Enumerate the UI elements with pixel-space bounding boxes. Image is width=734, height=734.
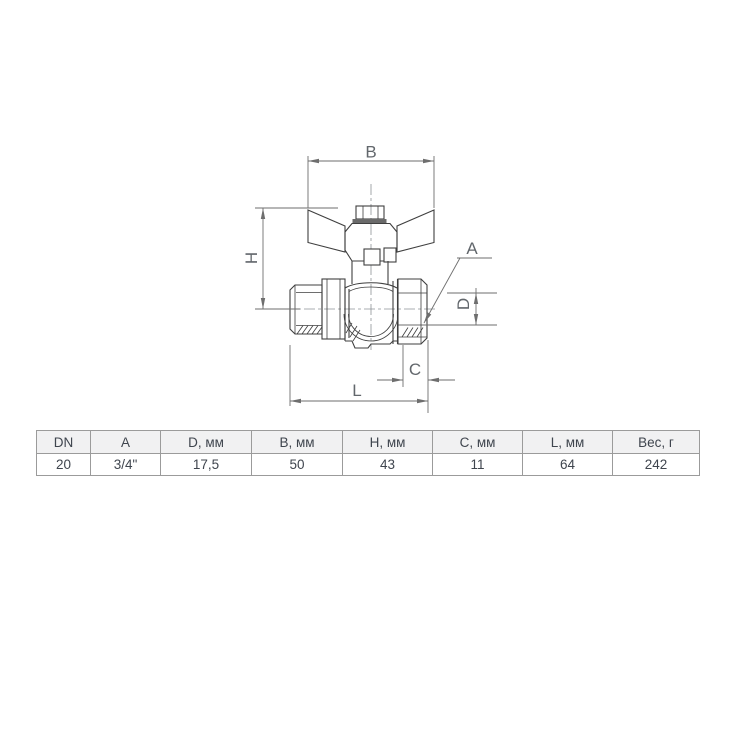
spec-table: DN A D, мм B, мм H, мм C, мм L, мм Вес, … xyxy=(36,430,700,476)
valve-technical-drawing: B H A D xyxy=(0,0,734,420)
handle-stem-square xyxy=(364,249,380,265)
male-thread-end xyxy=(290,285,322,334)
dim-label-c: C xyxy=(409,360,421,379)
spec-value-a: 3/4" xyxy=(91,454,161,476)
dim-label-d: D xyxy=(454,298,473,310)
spec-header-c-mm: C, мм xyxy=(433,431,523,454)
spec-value-row: 20 3/4" 17,5 50 43 11 64 242 xyxy=(37,454,700,476)
spec-value-c-mm: 11 xyxy=(433,454,523,476)
valve-body xyxy=(290,279,427,348)
dim-label-l: L xyxy=(352,381,361,400)
dim-label-h: H xyxy=(242,252,261,264)
spec-value-d-mm: 17,5 xyxy=(161,454,252,476)
handle-left-wing xyxy=(308,210,345,252)
dimension-d: D xyxy=(424,288,497,325)
spec-header-weight: Вес, г xyxy=(613,431,700,454)
spec-header-b-mm: B, мм xyxy=(252,431,343,454)
spec-value-h-mm: 43 xyxy=(343,454,433,476)
handle-right-wing xyxy=(397,210,434,252)
spec-header-row: DN A D, мм B, мм H, мм C, мм L, мм Вес, … xyxy=(37,431,700,454)
spec-header-dn: DN xyxy=(37,431,91,454)
spec-value-weight: 242 xyxy=(613,454,700,476)
dimension-l: L xyxy=(290,340,428,413)
dim-label-b: B xyxy=(365,143,376,162)
product-spec-page: B H A D xyxy=(0,0,734,734)
spec-header-h-mm: H, мм xyxy=(343,431,433,454)
dimension-c: C xyxy=(377,345,455,387)
spec-header-l-mm: L, мм xyxy=(523,431,613,454)
spec-value-b-mm: 50 xyxy=(252,454,343,476)
spec-header-d-mm: D, мм xyxy=(161,431,252,454)
spec-value-dn: 20 xyxy=(37,454,91,476)
handle-washer xyxy=(353,219,387,224)
spec-header-a: A xyxy=(91,431,161,454)
dim-label-a: A xyxy=(466,239,478,258)
spec-value-l-mm: 64 xyxy=(523,454,613,476)
coupling-nut xyxy=(398,279,427,344)
